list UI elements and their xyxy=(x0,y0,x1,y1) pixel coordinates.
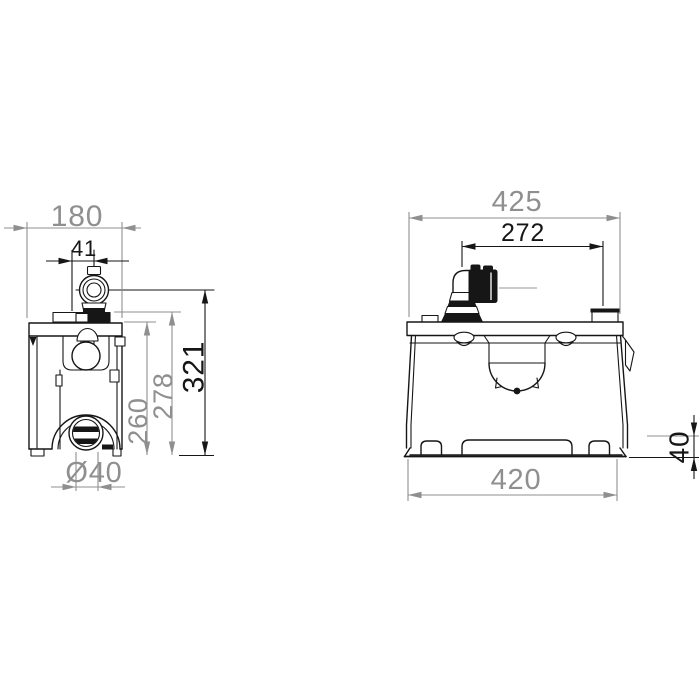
lid-clip-right xyxy=(556,332,576,343)
center-recess xyxy=(484,336,550,395)
side-view: 180 41 321 278 xyxy=(4,200,214,491)
lid-tab-left xyxy=(422,316,438,323)
side-foot-right xyxy=(113,449,121,456)
technical-drawing-page: 180 41 321 278 xyxy=(0,0,700,700)
dim-side-inlet-height: 321 xyxy=(178,290,215,456)
inlet-elbow xyxy=(441,265,537,323)
outlet-port-outer xyxy=(69,416,103,450)
foot-left xyxy=(421,441,442,455)
front-clip xyxy=(115,337,125,346)
dim-front-base-width-label: 420 xyxy=(491,464,542,496)
dim-front-base-width: 420 xyxy=(408,459,617,501)
dim-front-overall-width: 425 xyxy=(409,186,620,317)
dim-side-overall-depth-label: 180 xyxy=(51,200,103,233)
front-view: 425 272 420 40 xyxy=(405,186,700,501)
foot-right xyxy=(589,441,610,455)
dim-front-overall-width-label: 425 xyxy=(492,186,543,218)
side-flap xyxy=(626,340,635,371)
tank-lid-front xyxy=(407,322,623,336)
lid-clip-left xyxy=(454,332,474,343)
dim-side-body-height-label: 260 xyxy=(123,397,153,444)
dim-front-spacing-label: 272 xyxy=(501,219,545,247)
front-view-object xyxy=(405,265,635,457)
inlet-clamp-tab xyxy=(88,267,101,275)
dim-front-base-height-label: 40 xyxy=(664,431,695,464)
dim-side-outlet-diameter: Ø40 xyxy=(51,452,125,491)
tank-lid-side xyxy=(29,323,122,336)
dim-side-inlet-offset-label: 41 xyxy=(71,236,97,261)
dim-side-inlet-height-label: 321 xyxy=(178,341,211,393)
pump-cover-circle xyxy=(72,342,100,370)
elbow-coupling xyxy=(469,270,498,304)
dim-front-base-height: 40 xyxy=(629,415,699,479)
drain-dot xyxy=(514,388,521,395)
macerator-dimension-drawing: 180 41 321 278 xyxy=(0,0,700,700)
side-foot-left xyxy=(31,449,44,456)
lid-pin xyxy=(30,337,37,346)
inlet-pipe-outer xyxy=(80,276,109,305)
dim-side-outlet-diameter-label: Ø40 xyxy=(65,457,122,489)
base-slot xyxy=(462,440,572,455)
